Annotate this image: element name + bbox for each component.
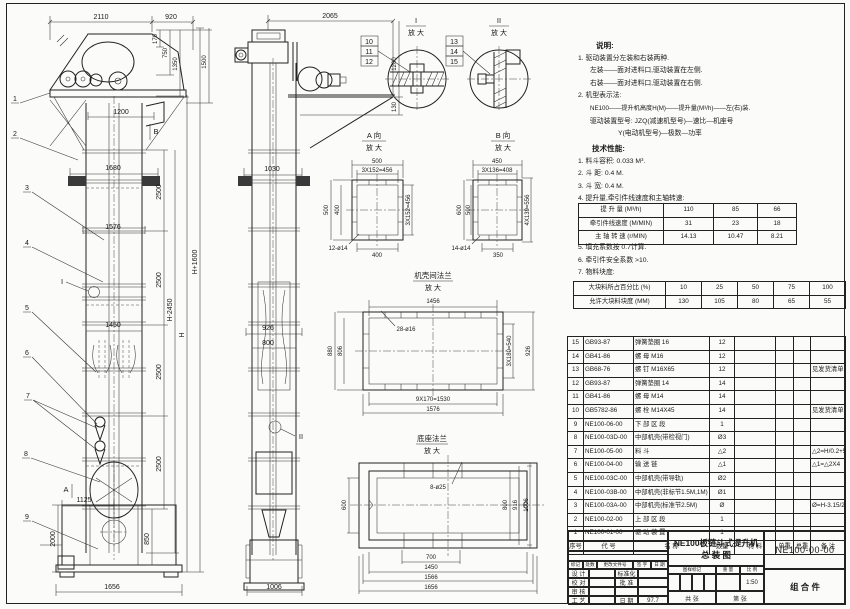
sig-label: 校 对 — [568, 578, 589, 587]
tech-title: 技术性能: — [578, 143, 843, 156]
bom-row: 9NE100-06-00下 部 区 段1 — [568, 418, 846, 432]
bom-row: 12GB93-87弹簧垫圈 1414 — [568, 377, 846, 391]
tech-item: 5. 填充系数按 0.7计算. — [578, 242, 843, 255]
sig-label: 设 计 — [568, 569, 589, 578]
drawing-number: NE100-00-00 — [764, 531, 846, 569]
bom-row: 6NE100-04-00输 送 链△1△1=△2X4 — [568, 459, 846, 473]
bom-row: 4NE100-03B-00中部机壳(非标节1.5M,1M)Ø1 — [568, 486, 846, 500]
note-line: 驱动装置型号: JZQ(减速机型号)—速比—机座号 — [578, 116, 843, 129]
bom-row: 2NE100-02-00上 部 区 段1 — [568, 513, 846, 527]
tech-section: 技术性能: 1. 料斗容积: 0.033 M³. 2. 斗 距: 0.4 M. … — [578, 143, 843, 206]
notes-section: 说明: 1. 驱动装置分左装和右装两种. 左装——面对进料口,驱动装置在左侧. … — [578, 40, 843, 141]
note-line: NE100——提升机高度H(M)——提升量(M³/h)——左(右)装. — [578, 103, 843, 116]
bom-row: 15GB93-87弹簧垫圈 1612 — [568, 337, 846, 351]
drawing-sheet: B I A 1 — [0, 0, 850, 609]
sig-label: 审 核 — [568, 587, 589, 596]
table-row: 提 升 量 (M³/h) 110 85 66 — [579, 204, 797, 218]
scale-value: 1:50 — [740, 574, 764, 591]
tech-item: 1. 料斗容积: 0.033 M³. — [578, 156, 843, 169]
tech-item: 6. 牵引件安全系数 >10. — [578, 255, 843, 268]
bom-table: 15GB93-87弹簧垫圈 161214GB41-86螺 母 M161213GB… — [567, 336, 846, 555]
notes-title: 说明: — [578, 40, 843, 53]
bom-row: 13GB68-76螺 钉 M16X6512见发货清单 — [568, 364, 846, 378]
tech-section-2: 5. 填充系数按 0.7计算. 6. 牵引件安全系数 >10. 7. 物料块度: — [578, 242, 843, 280]
lump-size-table: 大块料所占百分比 (%) 10 25 50 75 100 允许大块料块度 (MM… — [573, 281, 846, 309]
rev-header: 标记 — [568, 561, 583, 569]
speed-table: 提 升 量 (M³/h) 110 85 66 牵引件线速度 (M/MIN) 31… — [578, 203, 797, 245]
tech-item: 2. 斗 距: 0.4 M. — [578, 168, 843, 181]
bom-row: 10GB5782-86螺 栓 M14X4514见发货清单 — [568, 404, 846, 418]
table-row: 大块料所占百分比 (%) 10 25 50 75 100 — [574, 282, 846, 296]
bom-row: 3NE100-03A-00中部机壳(标准节2.5M)ØØ=H-3.15/2.5 — [568, 500, 846, 514]
tech-item: 7. 物料块度: — [578, 267, 843, 280]
note-line: 2. 机型表示法: — [578, 90, 843, 103]
drawing-product-title: NE100板链斗式提升机 — [674, 537, 758, 549]
table-row: 允许大块料块度 (MM) 130 105 80 65 55 — [574, 295, 846, 309]
bom-row: 11GB41-86螺 母 M1414 — [568, 391, 846, 405]
bom-row: 5NE100-03C-00中部机壳(带导轨)Ø2 — [568, 472, 846, 486]
table-row: 牵引件线速度 (M/MIN) 31 23 18 — [579, 217, 797, 231]
date-value: 97.7 — [638, 596, 668, 605]
note-line: 右装——面对进料口,驱动装置在右侧. — [578, 78, 843, 91]
note-line: 1. 驱动装置分左装和右装两种. — [578, 53, 843, 66]
bom-row: 7NE100-05-00料 斗△2△2=H/0.2+5.75 — [568, 445, 846, 459]
drawing-sheet-name: 总 装 图 — [701, 549, 731, 561]
title-block: 标记 处数 更改文件号 签 字 日 期 设 计 标准化 校 对 批 准 审 核 … — [567, 530, 845, 604]
bom-row: 14GB41-86螺 母 M1612 — [568, 350, 846, 364]
sig-label: 工 艺 — [568, 596, 589, 605]
part-type: 组 合 件 — [764, 569, 846, 605]
note-line: Y(电动机型号)—极数—功率 — [578, 128, 843, 141]
tech-item: 3. 斗 宽: 0.4 M. — [578, 181, 843, 194]
bom-row: 8NE100-03D-00中部机壳(带检视门)Ø3 — [568, 432, 846, 446]
note-line: 左装——面对进料口,驱动装置在左侧. — [578, 65, 843, 78]
